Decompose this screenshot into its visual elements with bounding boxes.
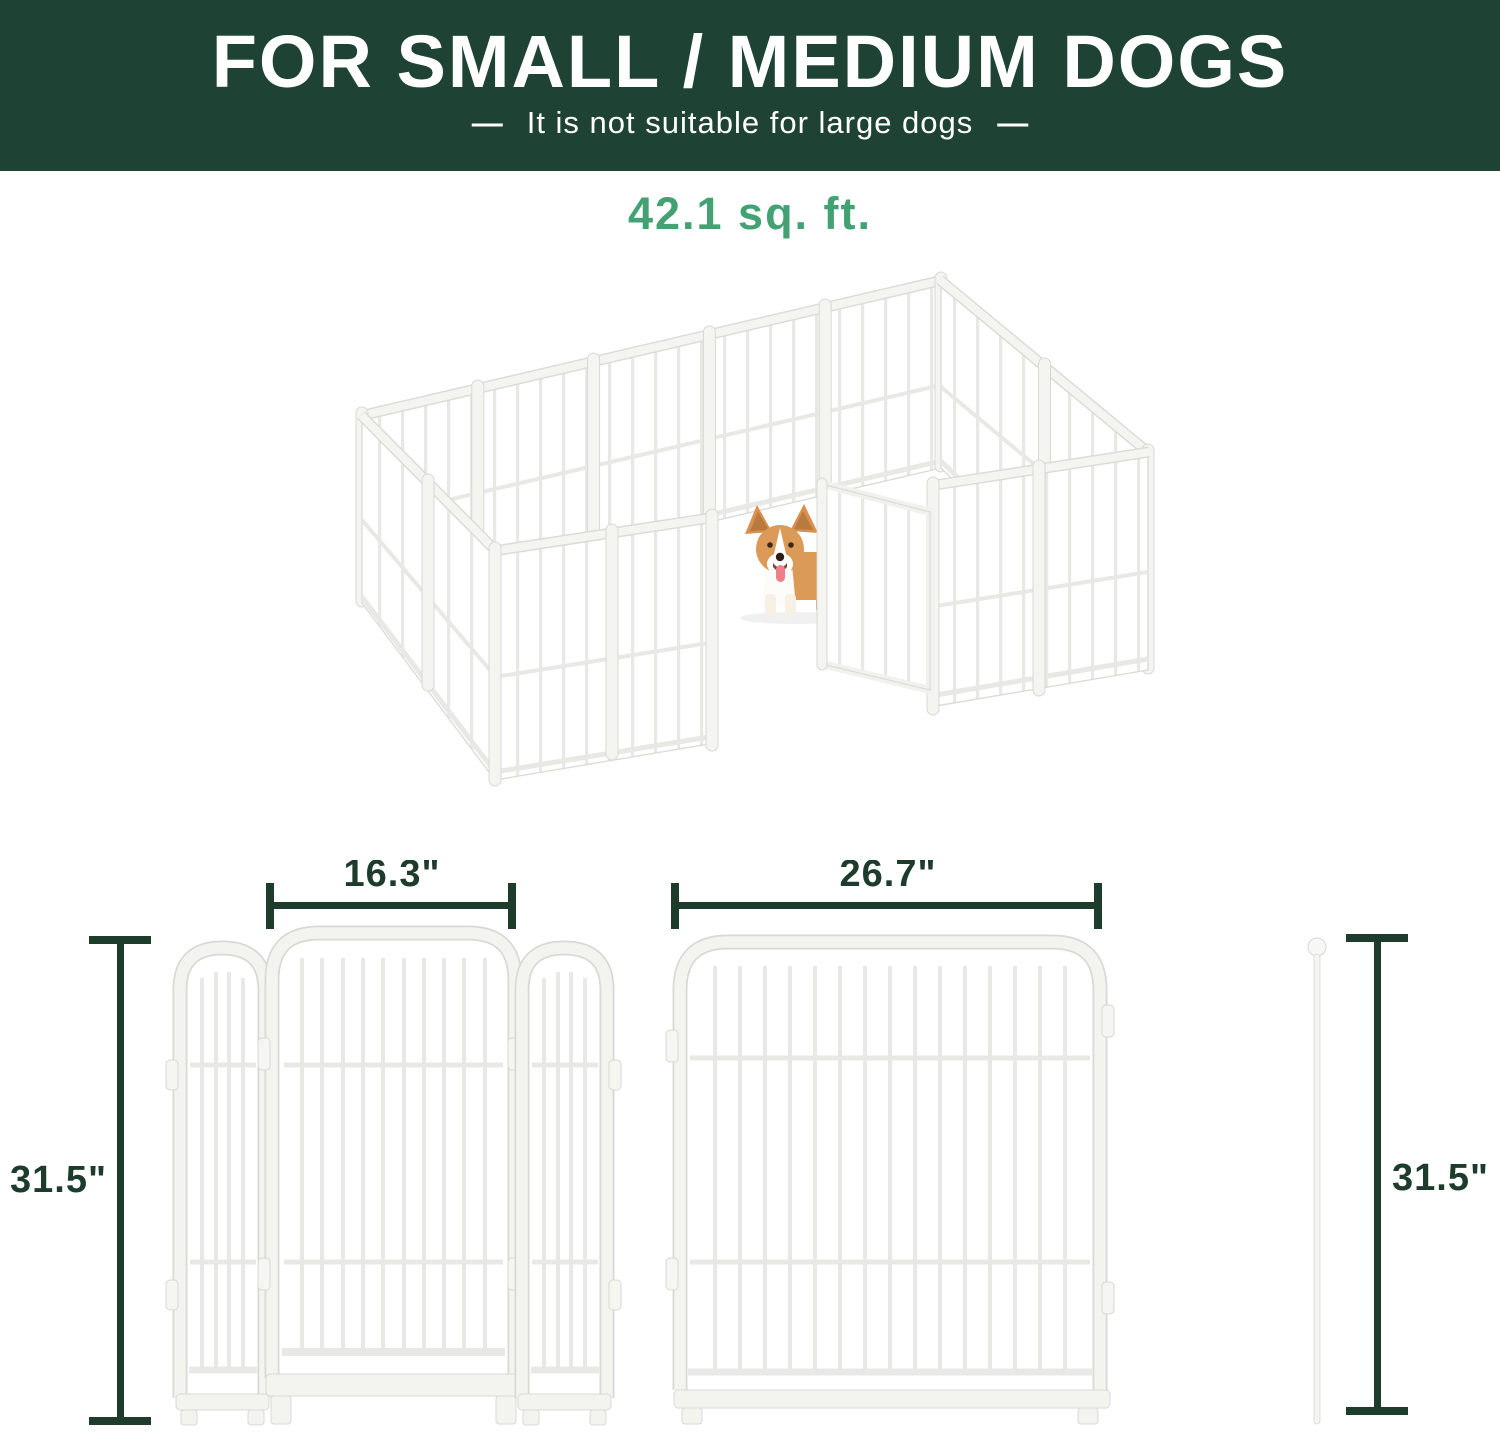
pen-front-right-wall [927, 452, 1149, 715]
area-size-label: 42.1 sq. ft. [0, 188, 1500, 240]
product-infographic: FOR SMALL / MEDIUM DOGS — It is not suit… [0, 0, 1500, 1445]
subtitle-right-dash: — [997, 105, 1028, 141]
gate-side-panel-right [518, 948, 621, 1425]
gate-door-panel [258, 933, 520, 1424]
connector-rod [1308, 938, 1326, 1424]
pen-open-door [817, 478, 930, 690]
subtitle-left-dash: — [472, 105, 503, 141]
gate-width-label: 16.3" [344, 860, 441, 895]
height-left-label: 31.5" [10, 1159, 107, 1201]
dimension-height-left: 31.5" [10, 936, 151, 1425]
playpen-3d-figure [330, 252, 1170, 817]
dimension-gate-width: 16.3" [266, 860, 516, 929]
height-right-label: 31.5" [1392, 1157, 1489, 1199]
panel-width-label: 26.7" [840, 860, 937, 895]
page-title: FOR SMALL / MEDIUM DOGS [212, 25, 1289, 99]
dimension-height-right: 31.5" [1346, 934, 1489, 1415]
subtitle-row: — It is not suitable for large dogs — [472, 105, 1029, 141]
dimension-diagrams: 31.5" 16.3" 26.7" [0, 860, 1500, 1445]
header-banner: FOR SMALL / MEDIUM DOGS — It is not suit… [0, 0, 1500, 171]
subtitle-text: It is not suitable for large dogs [527, 105, 974, 141]
pen-front-left-wall [489, 509, 718, 786]
gate-side-panel-left [166, 948, 269, 1425]
dimension-panel-width: 26.7" [671, 860, 1102, 929]
wide-panel [666, 942, 1114, 1424]
